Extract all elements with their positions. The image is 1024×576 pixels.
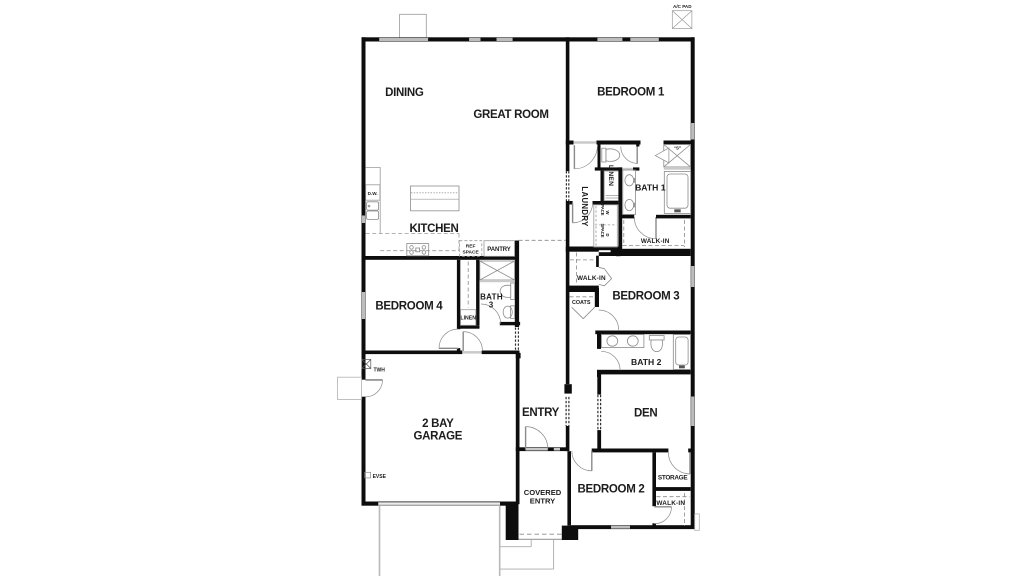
svg-text:GARAGE: GARAGE bbox=[413, 431, 462, 443]
svg-text:BEDROOM 2: BEDROOM 2 bbox=[578, 484, 645, 496]
svg-text:LAUNDRY: LAUNDRY bbox=[580, 186, 589, 227]
svg-text:PANTRY: PANTRY bbox=[487, 247, 510, 253]
svg-text:LINEN: LINEN bbox=[460, 316, 476, 322]
svg-text:BEDROOM 3: BEDROOM 3 bbox=[612, 290, 679, 302]
svg-text:SPACE: SPACE bbox=[600, 201, 605, 215]
svg-text:3: 3 bbox=[489, 301, 494, 310]
svg-text:2 BAY: 2 BAY bbox=[422, 418, 454, 430]
svg-text:“S”: “S” bbox=[674, 145, 682, 150]
svg-text:BEDROOM 4: BEDROOM 4 bbox=[375, 301, 443, 313]
svg-text:DEN: DEN bbox=[634, 407, 657, 419]
svg-text:BATH 1: BATH 1 bbox=[635, 183, 666, 193]
svg-text:WALK-IN: WALK-IN bbox=[577, 275, 606, 282]
svg-text:D.W.: D.W. bbox=[368, 191, 378, 196]
svg-text:DINING: DINING bbox=[385, 87, 424, 99]
svg-text:STORAGE: STORAGE bbox=[658, 474, 688, 481]
svg-text:GREAT ROOM: GREAT ROOM bbox=[473, 109, 548, 121]
svg-text:KITCHEN: KITCHEN bbox=[409, 223, 458, 235]
svg-text:SPACE: SPACE bbox=[600, 223, 605, 237]
svg-text:LINEN: LINEN bbox=[607, 165, 614, 186]
svg-text:TWH: TWH bbox=[374, 367, 386, 373]
svg-text:SPACE: SPACE bbox=[463, 249, 480, 255]
svg-text:WALK-IN: WALK-IN bbox=[641, 238, 670, 245]
svg-text:COATS: COATS bbox=[572, 300, 591, 306]
svg-text:BATH 2: BATH 2 bbox=[631, 357, 662, 367]
svg-text:REF: REF bbox=[466, 244, 476, 250]
svg-text:EVSE: EVSE bbox=[373, 474, 387, 480]
svg-text:BEDROOM 1: BEDROOM 1 bbox=[597, 86, 665, 98]
svg-text:ENTRY: ENTRY bbox=[530, 496, 555, 505]
svg-text:WALK-IN: WALK-IN bbox=[656, 500, 685, 507]
svg-text:A/C PAD: A/C PAD bbox=[673, 4, 692, 9]
svg-text:ENTRY: ENTRY bbox=[522, 407, 560, 419]
